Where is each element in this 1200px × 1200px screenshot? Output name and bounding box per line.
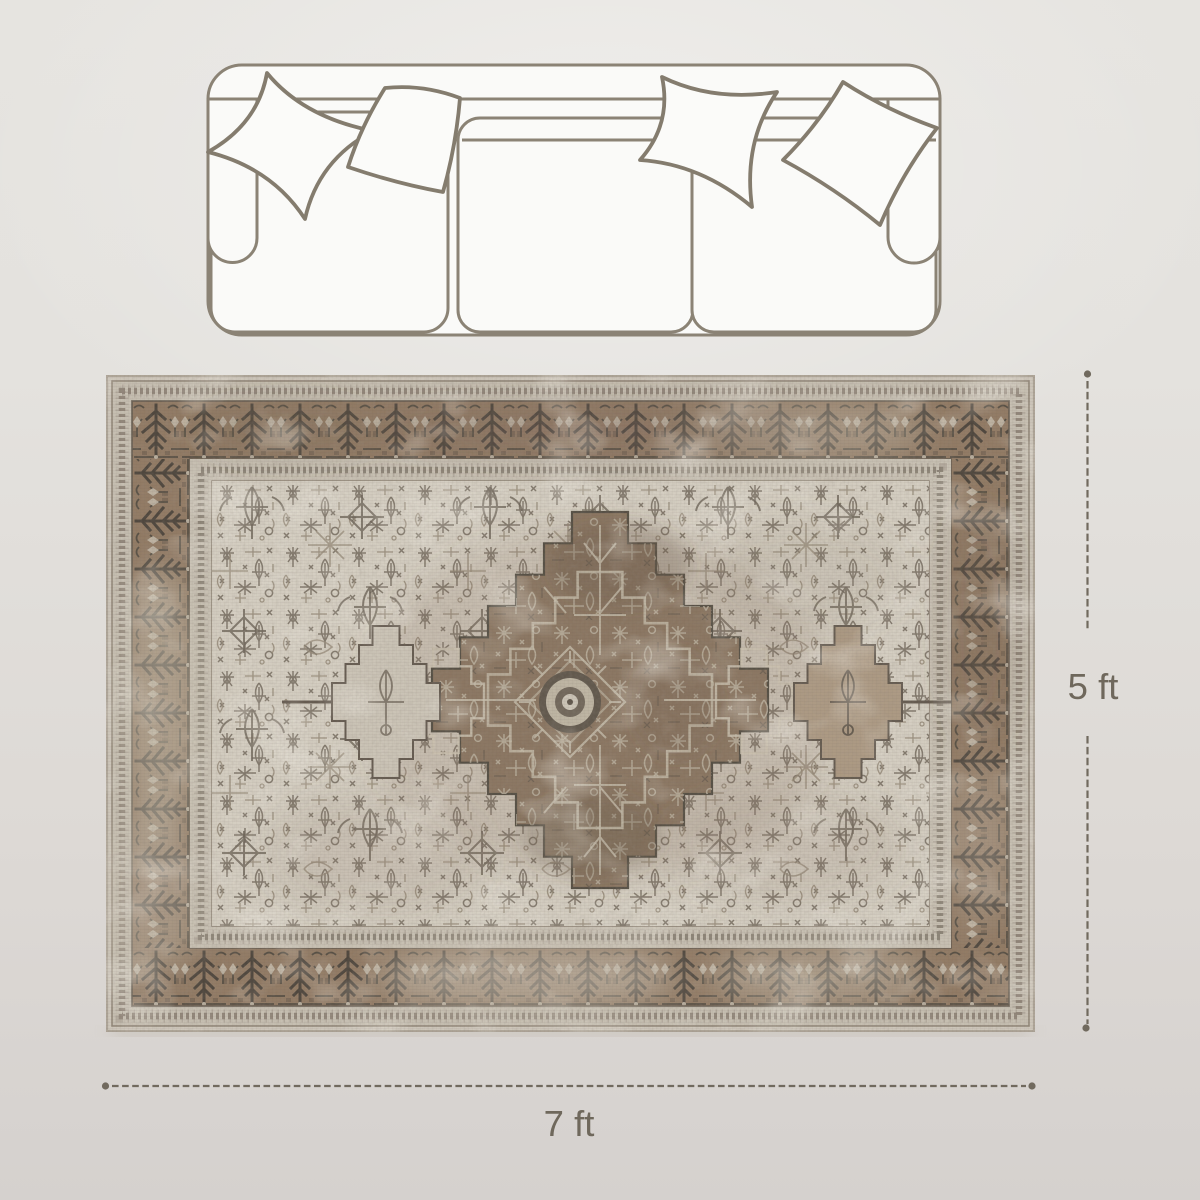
svg-text:5 ft: 5 ft bbox=[1068, 666, 1119, 707]
svg-text:7 ft: 7 ft bbox=[544, 1103, 595, 1144]
